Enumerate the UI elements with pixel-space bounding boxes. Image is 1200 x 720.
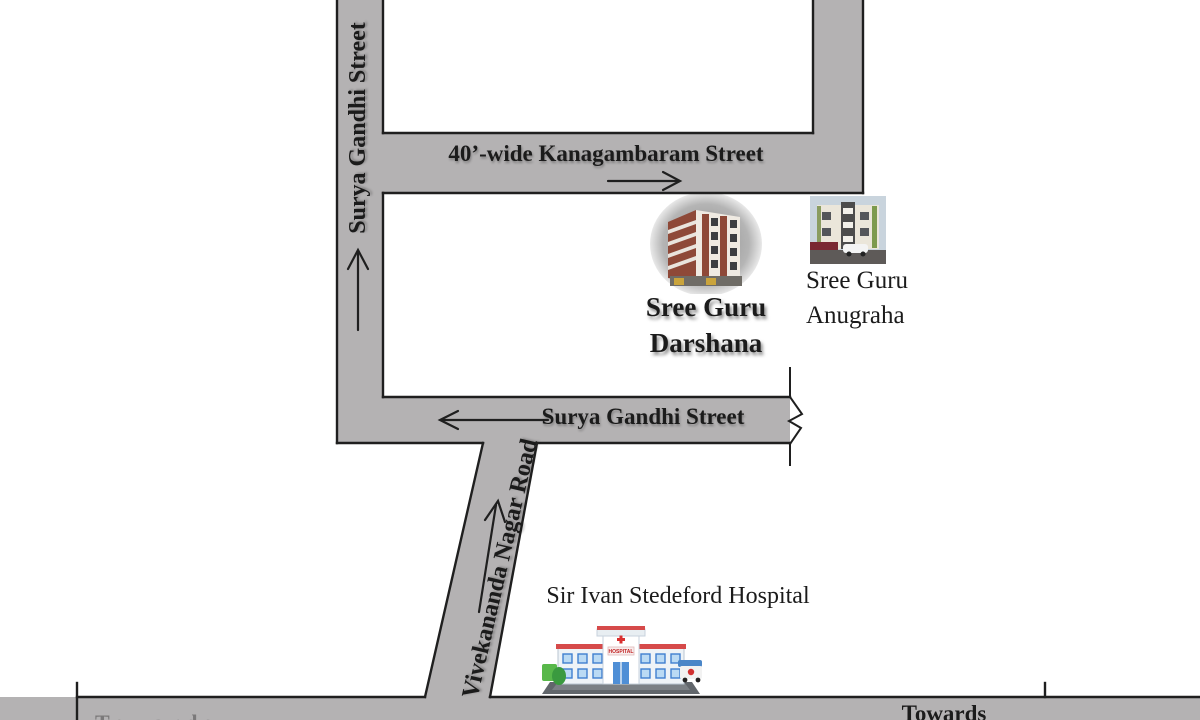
hospital-illustration: HOSPITAL: [540, 614, 702, 698]
hospital-sign-text: HOSPITAL: [609, 649, 634, 655]
anugraha-building-photo: [810, 196, 886, 264]
anugraha-label-line1: Sree Guru: [806, 263, 936, 298]
road-network: [0, 0, 1200, 720]
darshana-label: Sree Guru Darshana: [615, 289, 797, 361]
kanagambaram-street-label: 40’-wide Kanagambaram Street: [415, 141, 797, 167]
hospital-label: Sir Ivan Stedeford Hospital: [532, 583, 824, 611]
anugraha-label: Sree Guru Anugraha: [806, 263, 936, 333]
road-break-symbol: [789, 368, 802, 465]
darshana-building-photo: [650, 190, 762, 294]
towards-label-left-cutoff: Towards: [95, 710, 315, 720]
darshana-label-line2: Darshana: [615, 325, 797, 361]
anugraha-label-line2: Anugraha: [806, 298, 936, 333]
darshana-label-line1: Sree Guru: [615, 289, 797, 325]
horizontal-street-label: Surya Gandhi Street: [518, 404, 768, 430]
road-surfaces: [0, 0, 1200, 720]
vertical-street-label: Surya Gandhi Street: [345, 0, 375, 278]
towards-label-right: Towards: [884, 701, 1004, 720]
location-map: HOSPITAL Surya Gandhi Street 40’-wide Ka…: [0, 0, 1200, 720]
